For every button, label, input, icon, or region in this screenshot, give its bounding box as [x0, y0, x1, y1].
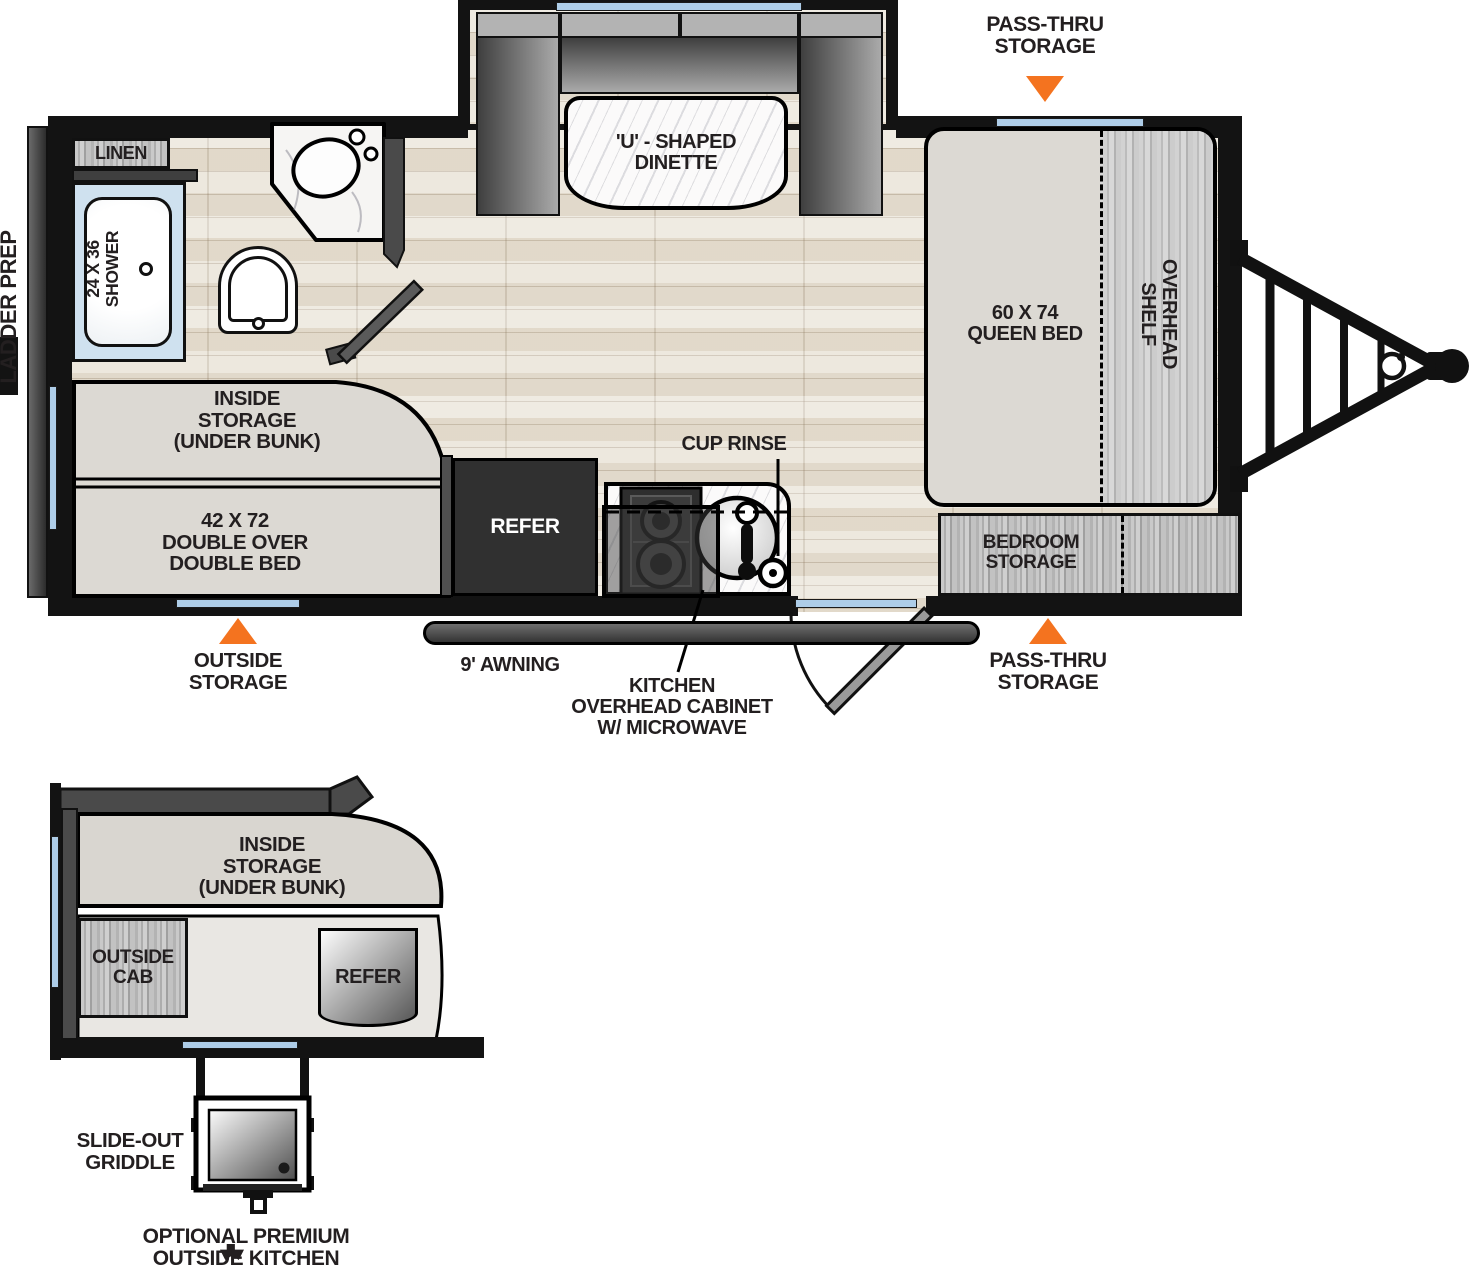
pass-thru-arrow-bottom-icon [1029, 618, 1067, 644]
outside-storage-arrow-icon [219, 618, 257, 644]
slide-out-griddle-label: SLIDE-OUT GRIDDLE [30, 1130, 230, 1173]
pass-thru-arrow-top-icon [1026, 76, 1064, 102]
osk-window-left [51, 836, 59, 988]
bath-faucet-dot-2 [365, 148, 377, 160]
pass-thru-bottom-label: PASS-THRU STORAGE [948, 650, 1148, 695]
bath-partition-wall [384, 138, 404, 267]
cup-rinse-label: CUP RINSE [664, 434, 804, 455]
queen-bed-label: 60 X 74 QUEEN BED [925, 303, 1125, 345]
outside-storage-label: OUTSIDE STORAGE [138, 650, 338, 693]
osk-caption-label: OPTIONAL PREMIUM OUTSIDE KITCHEN [96, 1226, 396, 1270]
griddle-knob [279, 1163, 290, 1174]
bath-faucet-dot-1 [350, 130, 364, 144]
osk-refer: REFER [318, 928, 418, 1027]
osk-refer-label: REFER [335, 967, 401, 988]
bedroom-storage-label: BEDROOM STORAGE [936, 533, 1126, 573]
osk-griddle-opening [182, 1041, 298, 1049]
awning-bar [423, 621, 980, 645]
osk-outside-cab: OUTSIDE CAB [78, 918, 188, 1018]
cup-rinse-center [769, 569, 777, 577]
kitchen-overhead-label: KITCHEN OVERHEAD CABINET W/ MICROWAVE [532, 676, 812, 740]
bunk-end-wall [441, 456, 452, 596]
trailer-tongue [1230, 240, 1469, 492]
pass-thru-top-label: PASS-THRU STORAGE [945, 14, 1145, 59]
osk-bunk-bar [60, 789, 332, 814]
overhead-shelf-label: OVERHEAD SHELF [1133, 234, 1179, 394]
kitchen-overhead-cabinet-shape [604, 507, 718, 596]
ladder-prep-label: LADDER PREP [0, 162, 21, 452]
bath-door-open [338, 281, 422, 363]
shower-label: 24 X 36 SHOWER [84, 209, 128, 329]
awning-label: 9' AWNING [445, 655, 575, 676]
floorplan-canvas: 'U' - SHAPED DINETTE LINEN REFER [0, 0, 1477, 1270]
inside-storage-label: INSIDE STORAGE (UNDER BUNK) [97, 388, 397, 453]
osk-outside-cab-label: OUTSIDE CAB [92, 948, 174, 988]
osk-wall-left-inner [61, 808, 78, 1040]
hitch-coupler [1435, 349, 1469, 383]
osk-inside-storage-label: INSIDE STORAGE (UNDER BUNK) [122, 834, 422, 899]
osk-bunk-bar-end [330, 777, 372, 814]
double-bed-label: 42 X 72 DOUBLE OVER DOUBLE BED [85, 510, 385, 575]
